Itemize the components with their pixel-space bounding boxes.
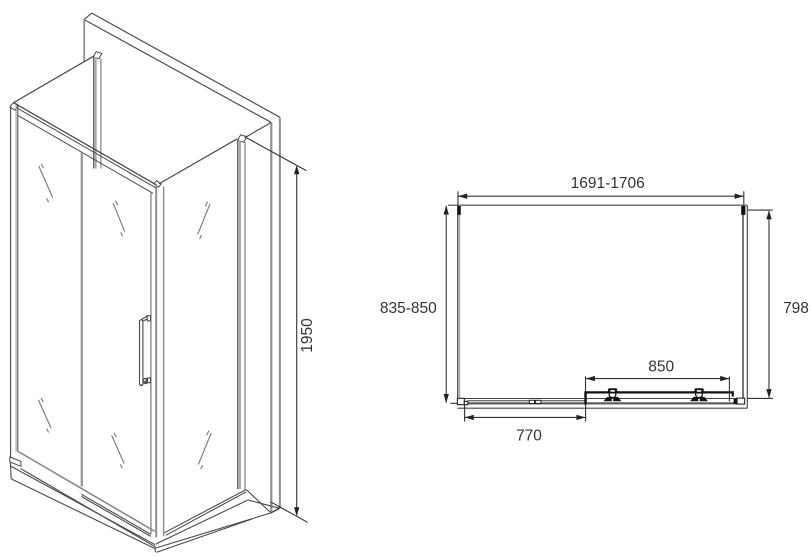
svg-text:835-850: 835-850: [380, 300, 437, 317]
svg-text:850: 850: [648, 359, 674, 376]
svg-text:1691-1706: 1691-1706: [571, 175, 645, 192]
svg-text:798: 798: [783, 300, 809, 317]
svg-text:1950: 1950: [299, 318, 316, 353]
svg-text:770: 770: [516, 428, 542, 445]
